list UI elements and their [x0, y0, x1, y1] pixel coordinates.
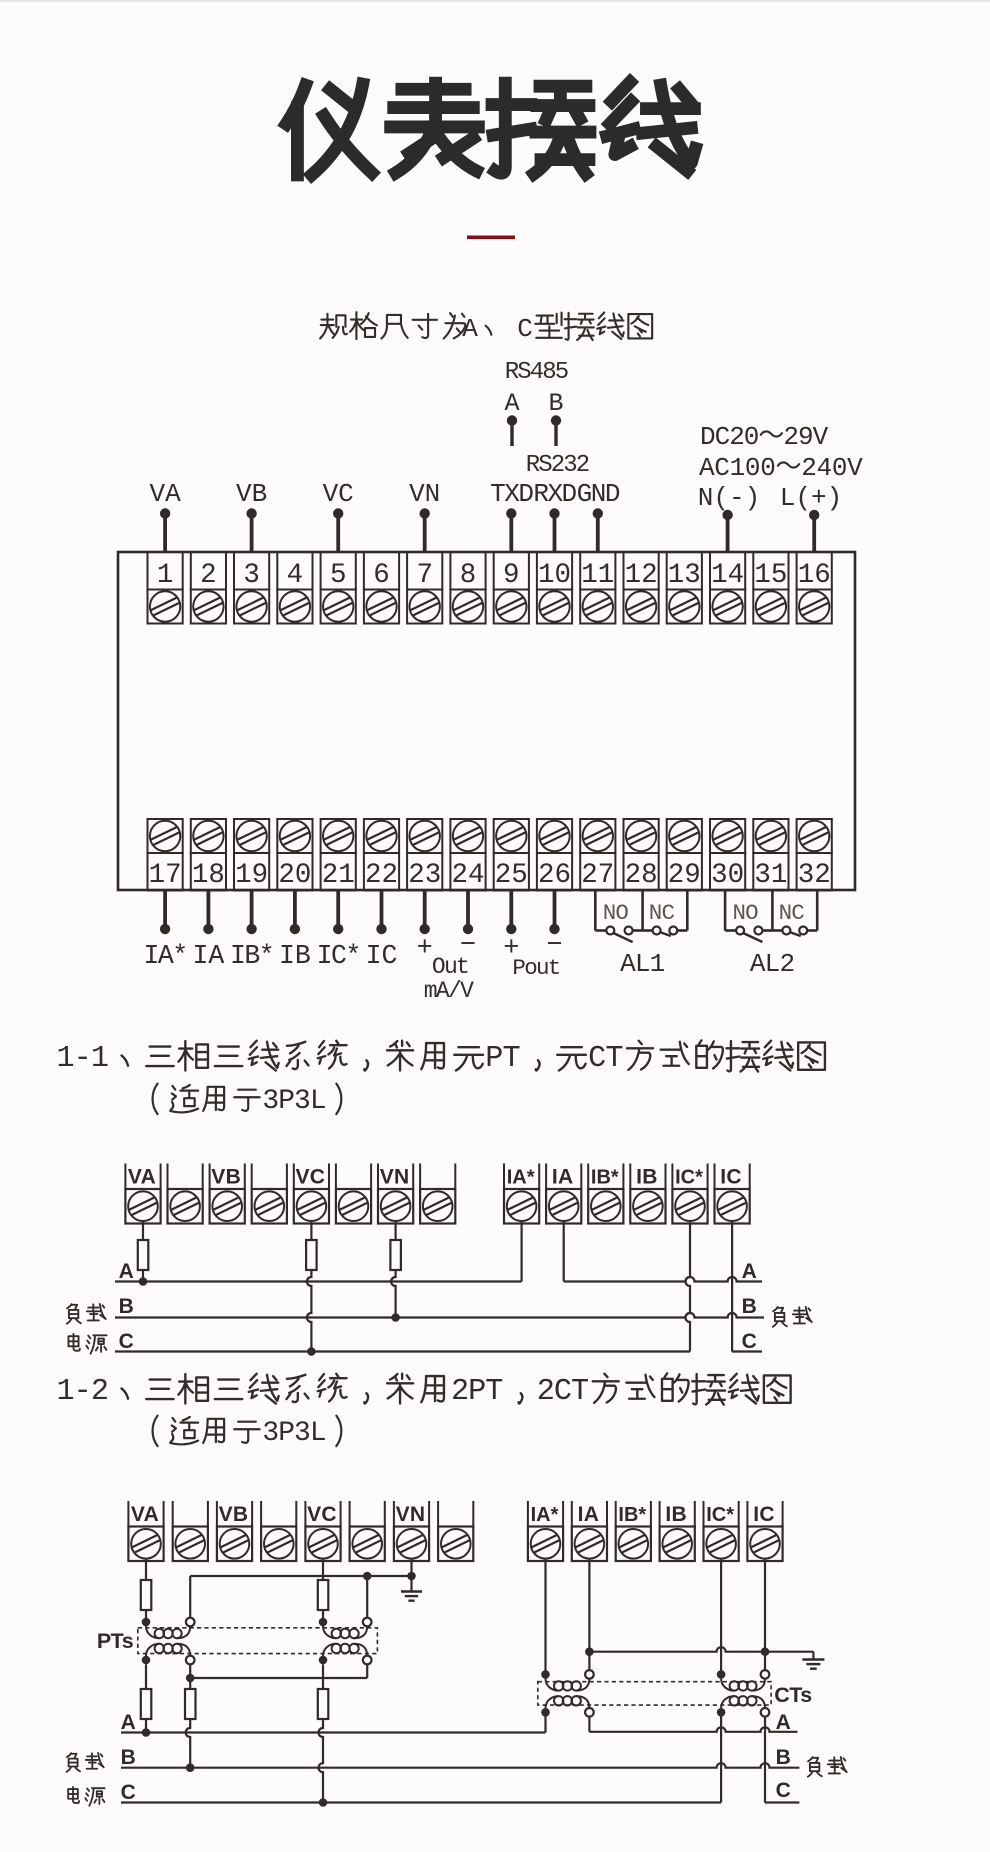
svg-text:AL1: AL1 — [620, 949, 665, 979]
svg-text:18: 18 — [192, 860, 225, 891]
svg-text:A: A — [776, 1711, 791, 1734]
svg-text:+: + — [417, 934, 433, 964]
svg-text:IC*: IC* — [675, 1167, 703, 1189]
svg-text:Out: Out — [432, 954, 468, 980]
svg-text:AL2: AL2 — [750, 949, 794, 979]
svg-text:2: 2 — [200, 560, 217, 591]
svg-text:P: P — [485, 1042, 503, 1076]
svg-text:C: C — [517, 314, 533, 344]
svg-text:27: 27 — [581, 860, 614, 891]
svg-text:NC: NC — [779, 900, 805, 926]
svg-text:IC*: IC* — [706, 1504, 734, 1526]
svg-text:-: - — [74, 1042, 92, 1076]
svg-text:9: 9 — [503, 560, 520, 591]
svg-text:VC: VC — [296, 1166, 326, 1189]
svg-text:A: A — [119, 1260, 134, 1283]
svg-text:15: 15 — [754, 560, 787, 591]
svg-text:3: 3 — [262, 1086, 279, 1117]
svg-text:20: 20 — [278, 860, 311, 891]
svg-text:P: P — [278, 1418, 295, 1449]
svg-text:A: A — [462, 314, 478, 344]
svg-text:VN: VN — [409, 479, 440, 509]
svg-text:A: A — [742, 1260, 757, 1283]
svg-text:31: 31 — [754, 860, 787, 891]
svg-text:32: 32 — [798, 860, 831, 891]
svg-text:IB*: IB* — [230, 941, 273, 971]
svg-text:DC20～29V: DC20～29V — [700, 422, 829, 452]
svg-text:B: B — [742, 1295, 757, 1318]
svg-text:RS485: RS485 — [505, 359, 568, 386]
svg-text:2: 2 — [537, 1375, 555, 1409]
svg-text:4: 4 — [287, 560, 304, 591]
svg-text:30: 30 — [711, 860, 744, 891]
svg-text:B: B — [119, 1295, 134, 1318]
svg-text:IC: IC — [720, 1166, 742, 1189]
svg-text:IB*: IB* — [618, 1504, 646, 1526]
svg-text:T: T — [485, 1375, 503, 1409]
svg-text:IA: IA — [192, 941, 224, 971]
svg-text:2: 2 — [91, 1375, 109, 1409]
svg-text:C: C — [554, 1375, 572, 1409]
svg-text:NC: NC — [649, 900, 675, 926]
svg-text:T: T — [605, 1042, 623, 1076]
svg-text:17: 17 — [149, 860, 182, 891]
svg-text:25: 25 — [495, 860, 528, 891]
svg-text:T: T — [571, 1375, 589, 1409]
svg-text:12: 12 — [625, 560, 658, 591]
svg-text:P: P — [468, 1375, 486, 1409]
svg-text:1: 1 — [157, 560, 174, 591]
svg-text:2: 2 — [451, 1375, 469, 1409]
svg-text:1: 1 — [57, 1375, 75, 1409]
svg-text:10: 10 — [538, 560, 571, 591]
svg-text:RS232: RS232 — [526, 452, 589, 479]
svg-text:VA: VA — [131, 1503, 159, 1526]
svg-text:8: 8 — [460, 560, 477, 591]
svg-text:IB: IB — [665, 1503, 687, 1526]
svg-text:A: A — [121, 1711, 136, 1734]
svg-text:NO: NO — [732, 900, 758, 926]
svg-text:GND: GND — [577, 479, 620, 509]
svg-text:1: 1 — [57, 1042, 75, 1076]
svg-text:14: 14 — [711, 560, 744, 591]
svg-text:VC: VC — [323, 479, 354, 509]
svg-text:3: 3 — [294, 1086, 311, 1117]
svg-text:28: 28 — [625, 860, 658, 891]
svg-text:P: P — [278, 1086, 295, 1117]
svg-text:13: 13 — [668, 560, 701, 591]
svg-text:6: 6 — [373, 560, 390, 591]
svg-text:IA: IA — [552, 1166, 574, 1189]
svg-text:L(+): L(+) — [780, 483, 842, 513]
svg-text:AC100～240V: AC100～240V — [699, 453, 863, 483]
svg-text:B: B — [121, 1746, 136, 1769]
svg-text:T: T — [502, 1042, 520, 1076]
svg-text:PTs: PTs — [97, 1629, 134, 1653]
svg-text:mA/V: mA/V — [424, 978, 474, 1004]
svg-text:IC: IC — [366, 941, 398, 971]
svg-text:1: 1 — [91, 1042, 109, 1076]
svg-text:16: 16 — [798, 560, 831, 591]
svg-text:VN: VN — [380, 1166, 410, 1189]
svg-text:IA*: IA* — [507, 1167, 535, 1189]
svg-text:29: 29 — [668, 860, 701, 891]
svg-text:VB: VB — [219, 1503, 249, 1526]
svg-text:RXD: RXD — [533, 479, 576, 509]
svg-text:VB: VB — [211, 1166, 241, 1189]
svg-text:IA*: IA* — [143, 941, 186, 971]
svg-text:21: 21 — [322, 860, 355, 891]
svg-text:TXD: TXD — [490, 479, 533, 509]
svg-text:VA: VA — [149, 479, 181, 509]
svg-text:VN: VN — [396, 1503, 426, 1526]
svg-text:3: 3 — [294, 1418, 311, 1449]
svg-text:Pout: Pout — [512, 955, 559, 981]
svg-text:11: 11 — [581, 560, 614, 591]
svg-text:NO: NO — [603, 900, 629, 926]
svg-text:L: L — [310, 1418, 327, 1449]
svg-text:B: B — [548, 389, 563, 418]
svg-text:VA: VA — [128, 1166, 156, 1189]
svg-text:B: B — [776, 1746, 791, 1769]
svg-text:IA: IA — [578, 1503, 600, 1526]
svg-text:3: 3 — [243, 560, 260, 591]
svg-text:VB: VB — [236, 479, 267, 509]
svg-text:19: 19 — [235, 860, 268, 891]
svg-text:IB: IB — [636, 1166, 658, 1189]
svg-text:C: C — [776, 1779, 791, 1802]
svg-text:C: C — [742, 1330, 757, 1353]
svg-text:A: A — [504, 389, 519, 418]
svg-text:CTs: CTs — [774, 1683, 812, 1707]
svg-text:IA*: IA* — [531, 1504, 559, 1526]
svg-text:L: L — [310, 1086, 327, 1117]
svg-text:C: C — [588, 1042, 606, 1076]
svg-text:5: 5 — [330, 560, 347, 591]
svg-text:-: - — [74, 1375, 92, 1409]
svg-text:26: 26 — [538, 860, 571, 891]
svg-text:N(-): N(-) — [698, 483, 760, 513]
svg-text:24: 24 — [451, 860, 484, 891]
svg-text:IB: IB — [279, 941, 311, 971]
svg-text:22: 22 — [365, 860, 398, 891]
svg-text:IB*: IB* — [591, 1167, 619, 1189]
svg-text:23: 23 — [408, 860, 441, 891]
svg-text:7: 7 — [416, 560, 433, 591]
svg-text:VC: VC — [307, 1503, 337, 1526]
svg-text:IC: IC — [753, 1503, 775, 1526]
svg-text:IC*: IC* — [317, 941, 360, 971]
svg-text:3: 3 — [262, 1418, 279, 1449]
svg-text:C: C — [121, 1781, 136, 1804]
svg-text:C: C — [119, 1330, 134, 1353]
